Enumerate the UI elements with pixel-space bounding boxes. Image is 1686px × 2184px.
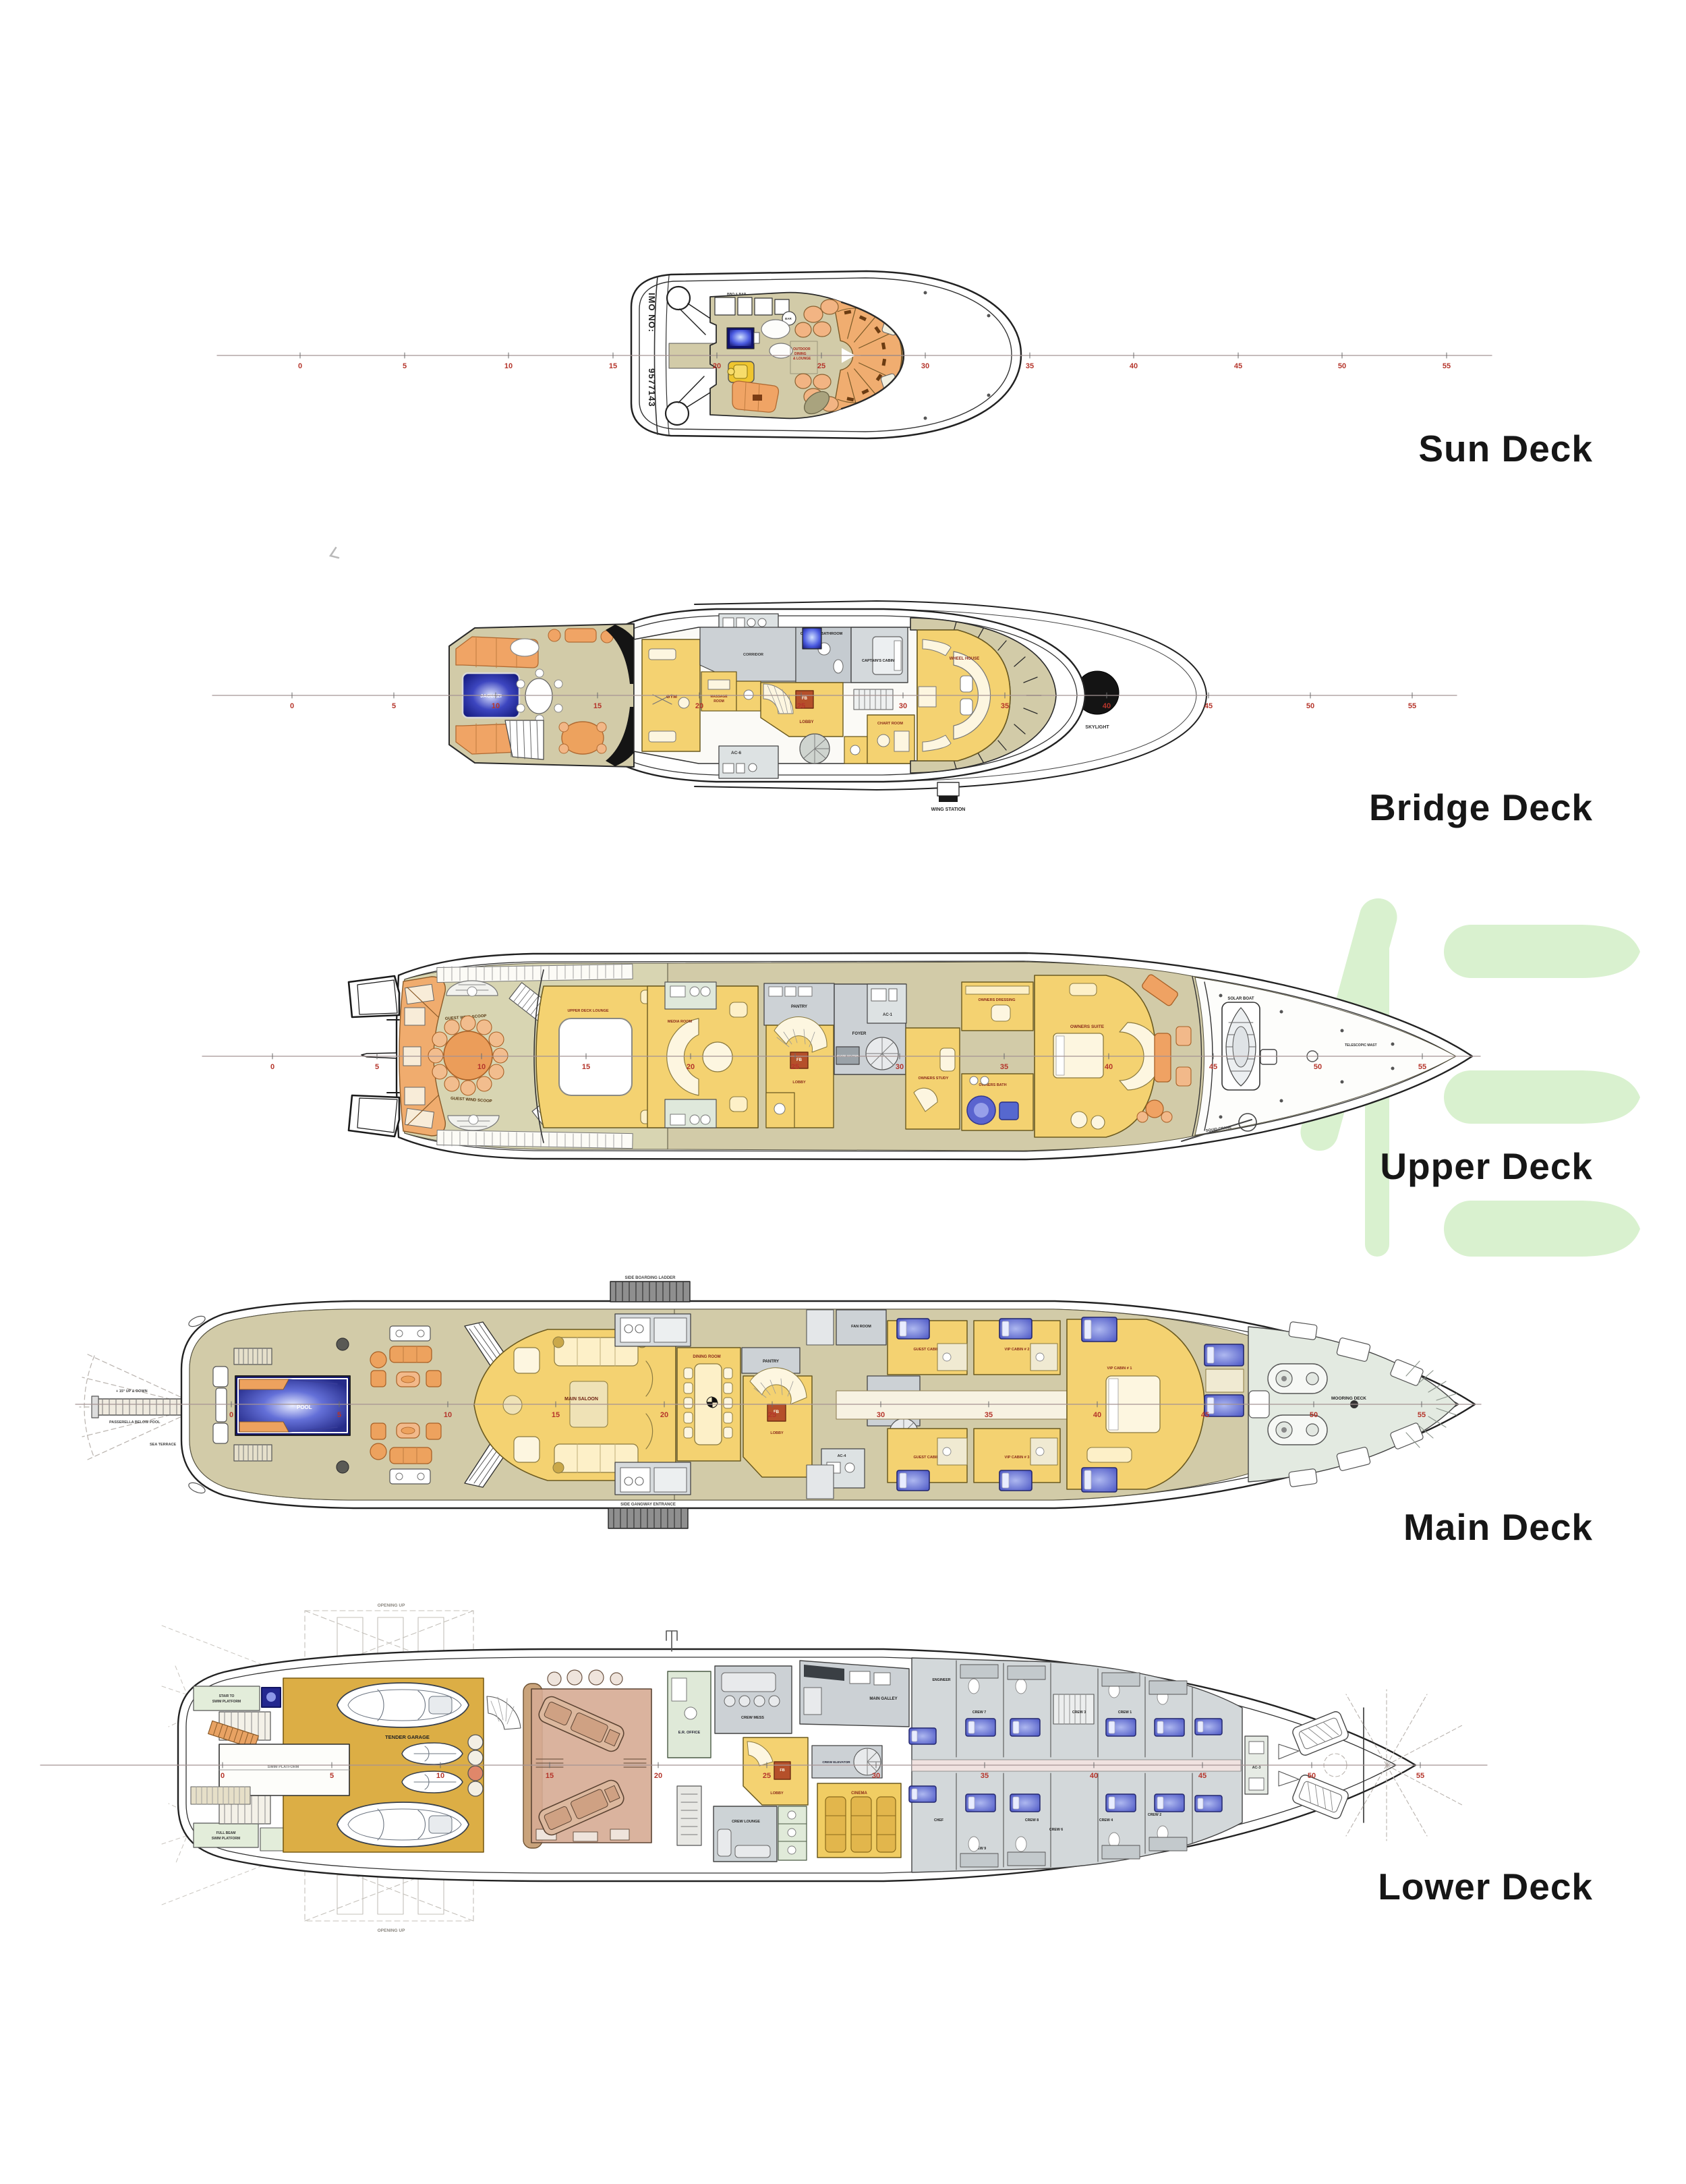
svg-text:15: 15 [546,1772,554,1780]
svg-text:55: 55 [1408,702,1416,710]
svg-text:0: 0 [270,1063,274,1071]
svg-text:40: 40 [1090,1772,1098,1780]
svg-text:30: 30 [872,1772,880,1780]
svg-text:AC-6: AC-6 [731,751,742,755]
svg-text:CREW 3: CREW 3 [1072,1711,1086,1715]
svg-text:0: 0 [221,1772,225,1780]
svg-text:FULL BEAM: FULL BEAM [216,1831,236,1835]
svg-text:40: 40 [1105,1063,1113,1071]
svg-text:POOL: POOL [297,1404,312,1410]
svg-text:5: 5 [392,702,396,710]
svg-text:35: 35 [1000,1063,1008,1071]
svg-text:FOYER: FOYER [852,1032,867,1036]
svg-text:25: 25 [797,702,805,710]
svg-text:STAIR TO: STAIR TO [219,1694,235,1698]
svg-text:45: 45 [1204,702,1213,710]
svg-text:35: 35 [1001,702,1009,710]
svg-text:5: 5 [375,1063,379,1071]
svg-text:SIDE BOARDING LADDER: SIDE BOARDING LADDER [624,1276,676,1280]
svg-text:SWIM PLATFORM: SWIM PLATFORM [212,1700,241,1704]
svg-text:CAPTAIN'S CABIN: CAPTAIN'S CABIN [862,659,894,663]
svg-text:50: 50 [1306,702,1314,710]
svg-text:45: 45 [1201,1411,1209,1419]
svg-text:IMO NO:: IMO NO: [647,293,657,333]
svg-text:+ 15° UP & DOWN: + 15° UP & DOWN [116,1389,148,1393]
svg-text:OPENING UP: OPENING UP [378,1603,405,1608]
svg-text:CHEF: CHEF [934,1818,943,1822]
svg-text:55: 55 [1443,362,1451,370]
svg-text:50: 50 [1310,1411,1318,1419]
svg-text:CREW 2: CREW 2 [1148,1813,1161,1817]
svg-text:VIP CABIN # 3: VIP CABIN # 3 [1005,1456,1030,1460]
svg-text:35: 35 [1026,362,1034,370]
svg-text:CREW 1: CREW 1 [1118,1711,1132,1715]
svg-text:TELESCOPIC MAST: TELESCOPIC MAST [1345,1043,1377,1047]
svg-text:OPENING UP: OPENING UP [378,1928,405,1933]
svg-text:50: 50 [1308,1772,1316,1780]
svg-text:DINING ROOM: DINING ROOM [693,1355,720,1359]
svg-text:45: 45 [1198,1772,1207,1780]
svg-text:AC-1: AC-1 [883,1013,893,1017]
svg-text:SWIM PLATFORM: SWIM PLATFORM [212,1837,240,1841]
svg-text:5: 5 [330,1772,334,1780]
svg-text:LOBBY: LOBBY [792,1081,806,1085]
svg-text:BAR: BAR [785,317,792,320]
svg-text:OWNERS DRESSING: OWNERS DRESSING [978,998,1015,1002]
svg-text:PASSERELLA BELOW POOL: PASSERELLA BELOW POOL [109,1420,161,1425]
svg-text:30: 30 [899,702,907,710]
svg-text:10: 10 [444,1411,452,1419]
svg-text:20: 20 [687,1063,695,1071]
svg-text:BBQ & BAR: BBQ & BAR [727,293,747,297]
svg-text:ROOM: ROOM [714,699,724,703]
svg-text:Main Deck: Main Deck [1403,1506,1593,1548]
svg-text:OUTDOOR: OUTDOOR [793,347,811,351]
svg-text:E.R. OFFICE: E.R. OFFICE [678,1731,701,1735]
svg-text:SKYLIGHT: SKYLIGHT [1085,725,1109,730]
svg-text:CREW MESS: CREW MESS [741,1716,764,1720]
svg-text:ENGINEER: ENGINEER [932,1678,950,1682]
svg-text:15: 15 [593,702,602,710]
svg-text:20: 20 [695,702,703,710]
svg-text:LOBBY: LOBBY [800,720,814,724]
svg-text:CREW 8: CREW 8 [1025,1818,1039,1822]
svg-text:35: 35 [985,1411,993,1419]
svg-text:0: 0 [229,1411,233,1419]
svg-text:CORRIDOR: CORRIDOR [743,653,763,657]
svg-text:50: 50 [1338,362,1346,370]
svg-text:0: 0 [290,702,294,710]
svg-text:5: 5 [403,362,407,370]
svg-text:20: 20 [713,362,721,370]
svg-text:CREW 7: CREW 7 [972,1711,986,1715]
svg-text:Sun Deck: Sun Deck [1418,428,1593,469]
svg-text:25: 25 [763,1772,771,1780]
svg-text:FB: FB [796,1058,803,1062]
svg-text:OWNERS STUDY: OWNERS STUDY [919,1076,949,1081]
svg-text:AC-3: AC-3 [1252,1766,1261,1770]
svg-text:15: 15 [582,1063,590,1071]
svg-text:TENDER GARAGE: TENDER GARAGE [385,1734,430,1740]
svg-text:FB: FB [780,1769,784,1773]
svg-text:MAIN GALLEY: MAIN GALLEY [869,1697,897,1701]
svg-text:55: 55 [1416,1772,1424,1780]
svg-text:WHEEL HOUSE: WHEEL HOUSE [950,657,980,661]
svg-text:MAIN SALOON: MAIN SALOON [564,1397,598,1402]
svg-text:SEA TERRACE: SEA TERRACE [150,1443,177,1447]
svg-text:CHART ROOM: CHART ROOM [877,722,903,726]
svg-text:45: 45 [1234,362,1242,370]
svg-text:10: 10 [504,362,513,370]
svg-text:9577143: 9577143 [647,368,657,407]
svg-text:SWIM PLATFORM: SWIM PLATFORM [268,1765,299,1769]
svg-text:10: 10 [477,1063,486,1071]
svg-text:PANTRY: PANTRY [763,1360,779,1364]
svg-text:SIDE GANGWAY ENTRANCE: SIDE GANGWAY ENTRANCE [620,1503,676,1507]
svg-text:20: 20 [660,1411,668,1419]
svg-text:CREW 6: CREW 6 [1049,1828,1063,1832]
svg-text:40: 40 [1103,702,1111,710]
svg-text:20: 20 [654,1772,662,1780]
svg-text:30: 30 [921,362,929,370]
svg-text:VIP CABIN # 2: VIP CABIN # 2 [1005,1348,1030,1352]
svg-text:35: 35 [981,1772,989,1780]
svg-text:Upper Deck: Upper Deck [1380,1145,1593,1187]
svg-text:VIP CABIN # 1: VIP CABIN # 1 [1107,1367,1132,1371]
svg-text:10: 10 [492,702,500,710]
svg-text:30: 30 [877,1411,885,1419]
svg-text:FAN ROOM: FAN ROOM [851,1325,871,1329]
svg-text:15: 15 [609,362,617,370]
svg-text:0: 0 [298,362,302,370]
svg-text:MEDIA ROOM: MEDIA ROOM [668,1020,693,1024]
svg-text:CREW 4: CREW 4 [1099,1818,1113,1822]
svg-text:& LOUNGE: & LOUNGE [793,357,811,361]
svg-text:50: 50 [1314,1063,1322,1071]
svg-text:40: 40 [1130,362,1138,370]
svg-text:LOBBY: LOBBY [770,1791,784,1795]
svg-text:25: 25 [817,362,825,370]
svg-text:30: 30 [896,1063,904,1071]
svg-text:45: 45 [1209,1063,1217,1071]
svg-text:OWNERS SUITE: OWNERS SUITE [1070,1025,1105,1029]
svg-text:CINEMA: CINEMA [851,1791,867,1795]
svg-text:AC-4: AC-4 [838,1454,847,1458]
svg-text:Bridge Deck: Bridge Deck [1369,786,1593,828]
svg-text:10: 10 [436,1772,444,1780]
svg-text:MOORING DECK: MOORING DECK [1331,1396,1366,1401]
svg-text:25: 25 [768,1411,776,1419]
svg-text:15: 15 [552,1411,560,1419]
svg-text:5: 5 [337,1411,341,1419]
svg-text:CREW ELEVATOR: CREW ELEVATOR [822,1760,850,1764]
svg-text:SOLAR BOAT: SOLAR BOAT [1227,997,1254,1001]
svg-text:LOBBY: LOBBY [770,1431,784,1435]
svg-text:UPPER DECK LOUNGE: UPPER DECK LOUNGE [567,1009,608,1013]
svg-text:CREW LOUNGE: CREW LOUNGE [732,1820,760,1824]
svg-text:Lower Deck: Lower Deck [1378,1866,1593,1907]
svg-text:55: 55 [1418,1063,1426,1071]
svg-text:PANTRY: PANTRY [791,1005,807,1009]
svg-text:55: 55 [1418,1411,1426,1419]
svg-text:WING STATION: WING STATION [931,807,966,812]
svg-text:40: 40 [1093,1411,1101,1419]
svg-text:FB: FB [802,697,808,701]
svg-text:25: 25 [791,1063,799,1071]
